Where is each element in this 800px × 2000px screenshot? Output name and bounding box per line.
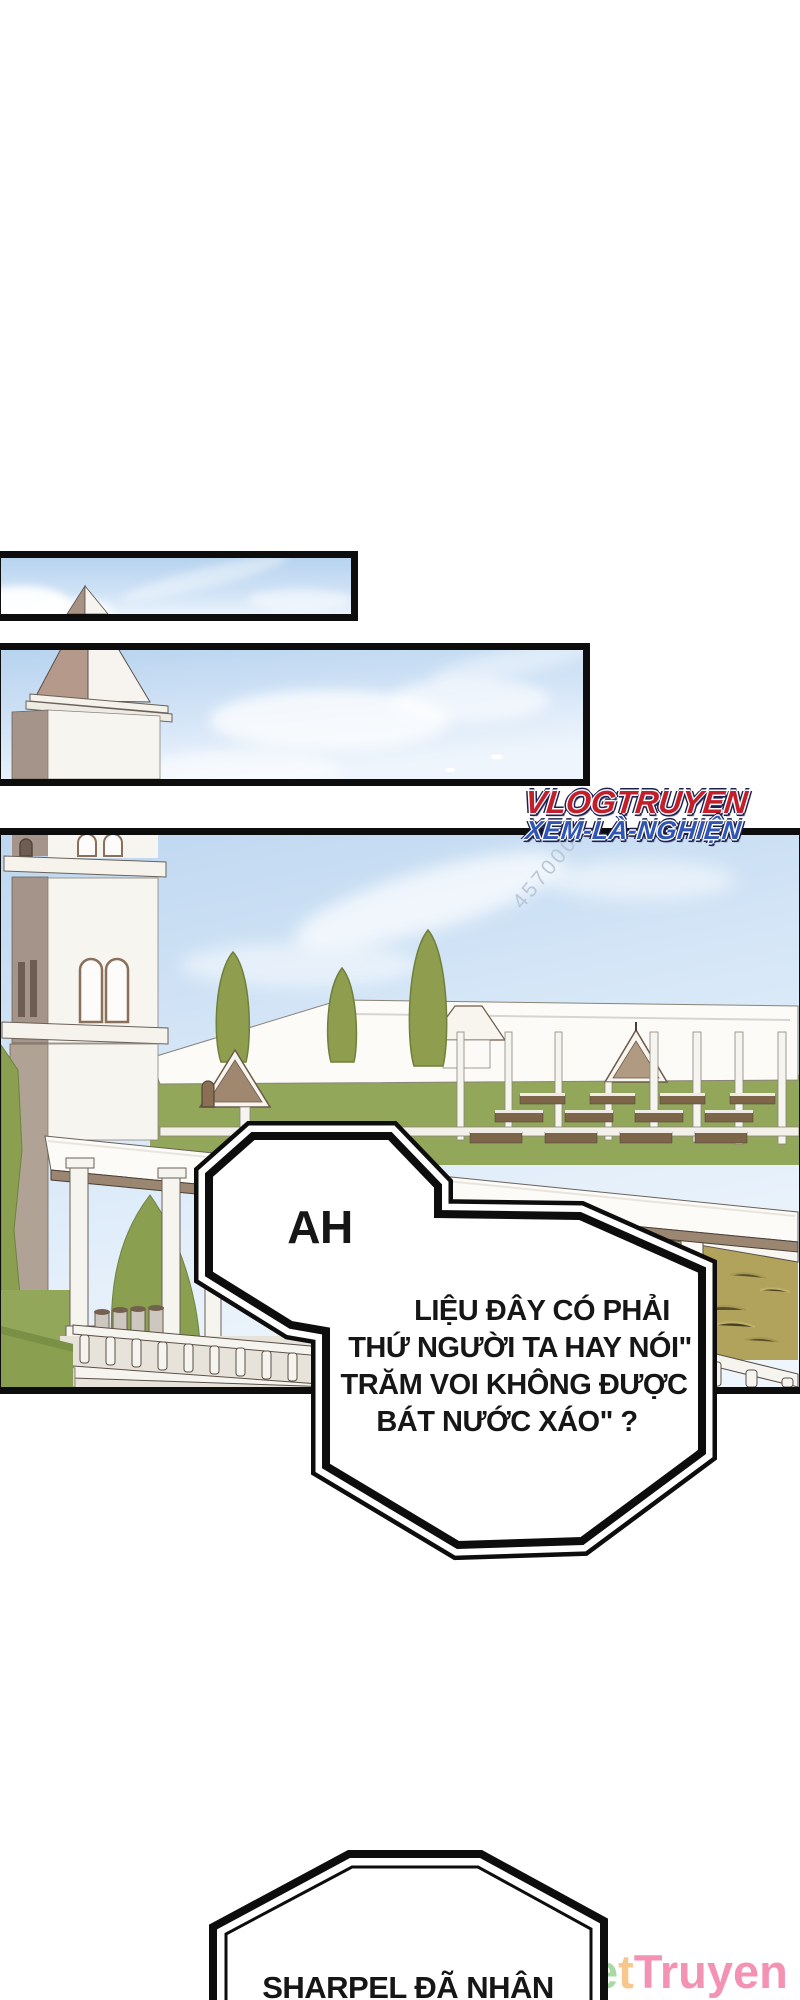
speech-ah: AH bbox=[287, 1201, 352, 1253]
speech-line-4: BÁT NƯỚC XÁO" ? bbox=[376, 1404, 637, 1438]
speech-bottom: SHARPEL ĐÃ NHÂN bbox=[262, 1969, 554, 2000]
speech-bubbles-overlay: AH LIỆU ĐÂY CÓ PHẢI THỨ NGƯỜI TA HAY NÓI… bbox=[0, 0, 800, 2000]
speech-bubble-main: AH LIỆU ĐÂY CÓ PHẢI THỨ NGƯỜI TA HAY NÓI… bbox=[209, 1136, 702, 1545]
speech-line-3: TRĂM VOI KHÔNG ĐƯỢC bbox=[340, 1367, 688, 1401]
speech-line-1: LIỆU ĐÂY CÓ PHẢI bbox=[414, 1293, 670, 1327]
speech-line-2: THỨ NGƯỜI TA HAY NÓI" bbox=[348, 1330, 692, 1364]
speech-bubble-bottom: SHARPEL ĐÃ NHÂN bbox=[213, 1854, 604, 2000]
comic-page: 457000 bbox=[0, 0, 800, 2000]
